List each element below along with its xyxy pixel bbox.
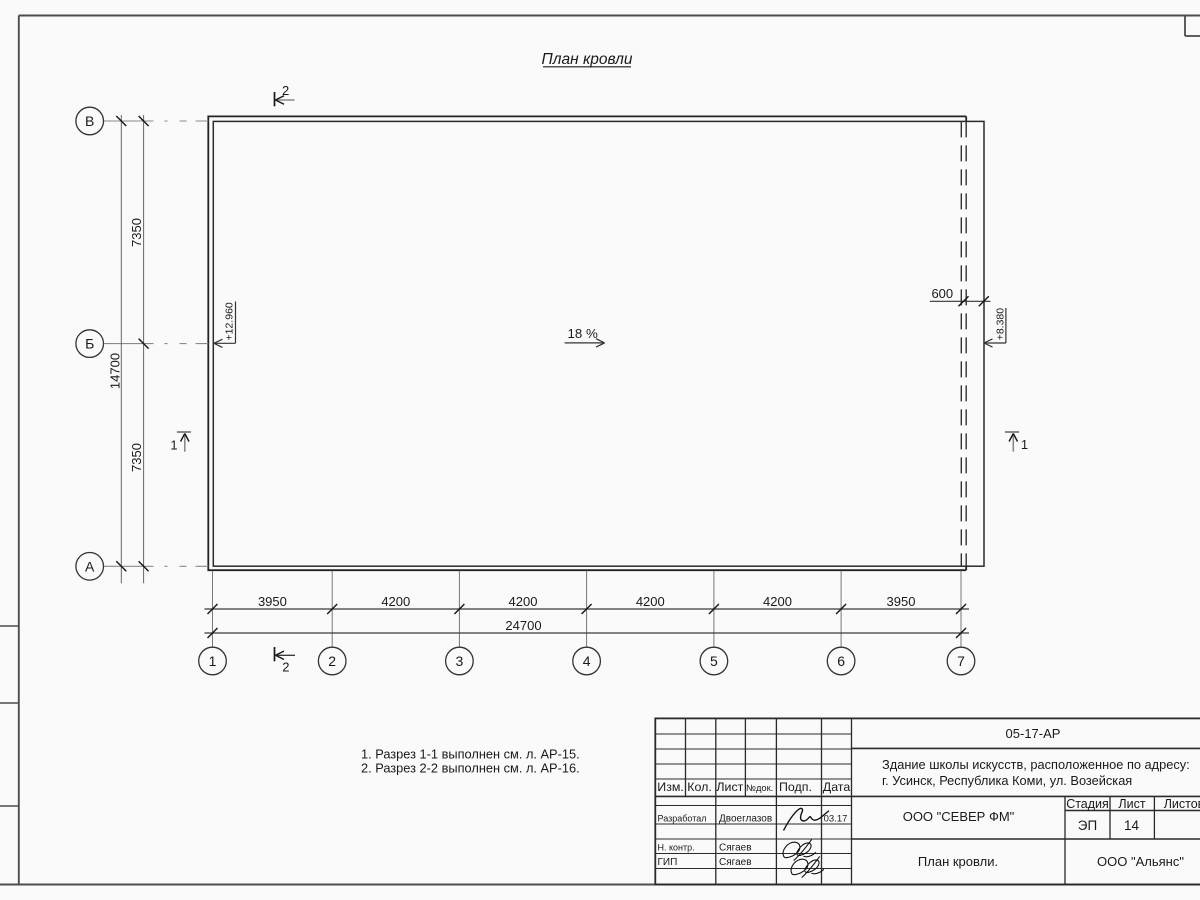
- svg-text:Н. контр.: Н. контр.: [658, 843, 695, 853]
- svg-text:4200: 4200: [636, 594, 665, 609]
- svg-text:1. Разрез 1-1 выполнен см. л.: 1. Разрез 1-1 выполнен см. л. АР-15.: [361, 747, 580, 762]
- svg-text:Разработал: Разработал: [658, 814, 707, 824]
- svg-text:4200: 4200: [509, 594, 538, 609]
- svg-text:3950: 3950: [887, 594, 916, 609]
- svg-text:3: 3: [456, 653, 464, 669]
- svg-text:14: 14: [1124, 818, 1140, 833]
- svg-text:3950: 3950: [258, 594, 287, 609]
- svg-text:Здание школы искусств, располо: Здание школы искусств, расположенное по …: [882, 757, 1190, 772]
- svg-text:План кровли: План кровли: [542, 51, 633, 68]
- svg-text:2: 2: [328, 653, 336, 669]
- svg-text:2: 2: [282, 660, 289, 675]
- svg-text:Стадия: Стадия: [1066, 797, 1109, 811]
- svg-text:В: В: [85, 113, 94, 129]
- svg-text:600: 600: [931, 286, 953, 301]
- svg-text:Дата: Дата: [823, 780, 851, 794]
- svg-text:ЭП: ЭП: [1078, 818, 1097, 833]
- svg-text:Сягаев: Сягаев: [719, 843, 752, 854]
- svg-text:План кровли.: План кровли.: [918, 854, 998, 869]
- svg-text:ООО "Альянс": ООО "Альянс": [1097, 854, 1184, 869]
- svg-text:Подп.: Подп.: [779, 780, 812, 794]
- svg-text:+12.960: +12.960: [223, 302, 235, 340]
- svg-text:А: А: [85, 558, 95, 574]
- svg-text:1: 1: [1021, 437, 1028, 452]
- svg-text:4200: 4200: [381, 594, 410, 609]
- svg-text:7: 7: [957, 653, 965, 669]
- svg-text:г. Усинск, Республика Коми, ул: г. Усинск, Республика Коми, ул. Возейска…: [882, 773, 1132, 788]
- svg-text:Кол.: Кол.: [687, 780, 712, 794]
- svg-text:Изм.: Изм.: [657, 780, 684, 794]
- svg-text:18 %: 18 %: [568, 326, 598, 341]
- svg-text:+8.380: +8.380: [995, 308, 1007, 341]
- svg-text:24700: 24700: [505, 618, 541, 633]
- svg-text:7350: 7350: [129, 443, 144, 472]
- svg-text:4: 4: [583, 653, 591, 669]
- svg-text:Листов: Листов: [1164, 797, 1200, 811]
- svg-text:4200: 4200: [763, 594, 792, 609]
- svg-text:6: 6: [837, 653, 845, 669]
- svg-text:14700: 14700: [107, 353, 122, 389]
- svg-text:03.17: 03.17: [824, 814, 848, 825]
- svg-text:Лист: Лист: [716, 780, 743, 794]
- svg-text:1: 1: [170, 438, 177, 453]
- svg-text:Лист: Лист: [1118, 797, 1145, 811]
- svg-text:2. Разрез 2-2 выполнен см. л.: 2. Разрез 2-2 выполнен см. л. АР-16.: [361, 761, 580, 776]
- svg-text:ГИП: ГИП: [658, 857, 678, 868]
- svg-text:№док.: №док.: [746, 783, 773, 793]
- svg-text:Двоеглазов: Двоеглазов: [719, 814, 772, 825]
- svg-text:Б: Б: [85, 336, 94, 352]
- svg-text:05-17-АР: 05-17-АР: [1006, 726, 1061, 741]
- svg-text:7350: 7350: [129, 218, 144, 247]
- svg-text:ООО "СЕВЕР ФМ": ООО "СЕВЕР ФМ": [903, 809, 1015, 824]
- svg-text:1: 1: [209, 653, 217, 669]
- svg-text:Сягаев: Сягаев: [719, 857, 752, 868]
- svg-text:2: 2: [282, 83, 289, 98]
- svg-text:5: 5: [710, 653, 718, 669]
